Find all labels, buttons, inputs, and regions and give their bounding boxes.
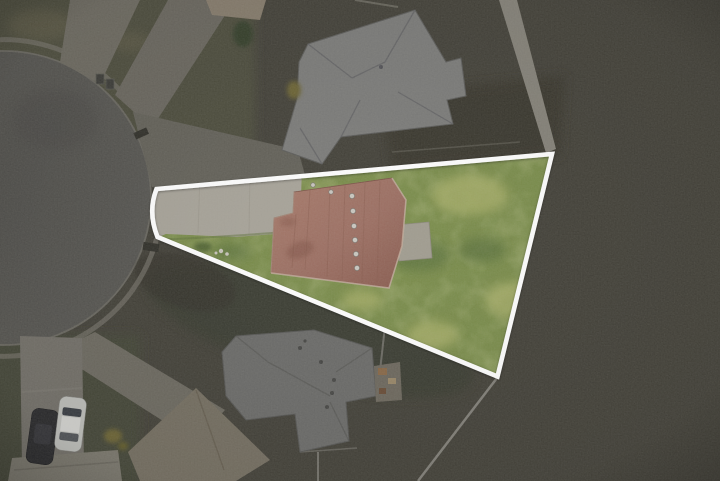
aerial-photo bbox=[0, 0, 720, 481]
vignette bbox=[0, 0, 720, 481]
aerial-photo-canvas bbox=[0, 0, 720, 481]
